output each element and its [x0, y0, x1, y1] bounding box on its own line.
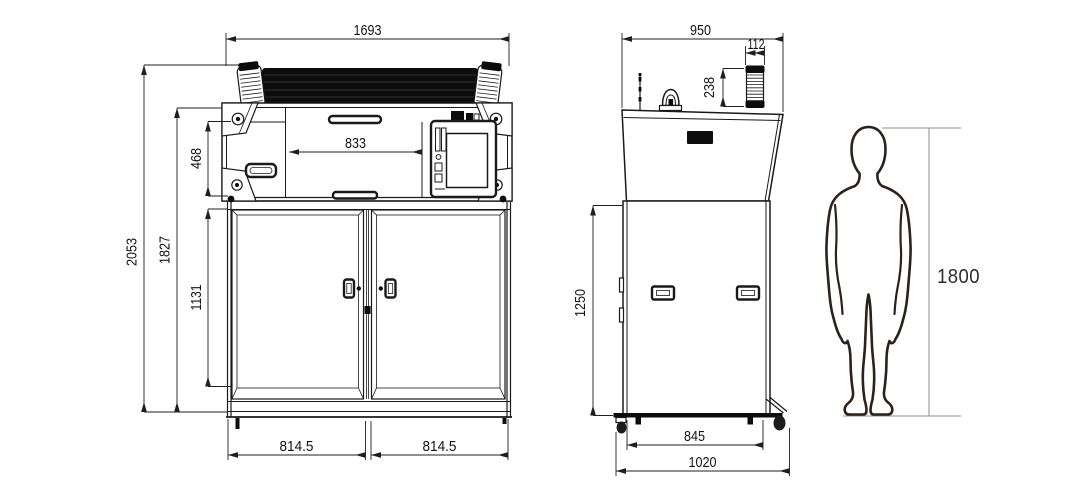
dim-overall-width: 1693 [226, 22, 509, 66]
human-figure: 1800 [826, 127, 980, 416]
dim-label-roller-length: 238 [701, 77, 718, 98]
dim-label-right-door-width: 814.5 [423, 438, 457, 455]
console-handle-slot [246, 164, 276, 177]
control-panel [431, 111, 496, 197]
dim-label-top-depth: 950 [690, 22, 711, 39]
door-gap [367, 210, 369, 399]
leveling-foot-left [636, 418, 642, 425]
leveling-foot-right [748, 418, 754, 425]
hinge-left-lower [620, 308, 624, 322]
side-body [620, 201, 771, 415]
right-door-handle [386, 280, 396, 298]
dim-label-opening-width: 833 [345, 135, 366, 152]
dim-roller-diameter: 112 [746, 36, 765, 65]
dim-label-left-door-width: 814.5 [280, 438, 314, 455]
dim-label-base-depth: 845 [684, 428, 705, 445]
right-door [372, 210, 506, 399]
side-vent [687, 131, 713, 144]
side-handle-right [737, 287, 759, 300]
roller-end-cap-left [236, 61, 265, 109]
top-vent-slot [329, 116, 381, 123]
antenna [638, 73, 641, 110]
dim-left-door-width: 814.5 [228, 419, 366, 460]
side-handle-left [652, 287, 674, 300]
dim-label-console-height: 468 [188, 148, 205, 169]
dim-label-door-height: 1131 [188, 285, 205, 311]
roller-end-cap-right [474, 61, 503, 109]
dim-roller-length: 238 [701, 69, 744, 107]
dim-label-overall-depth: 1020 [689, 454, 717, 471]
console-band [222, 103, 512, 202]
hinge-bolt-right [500, 196, 507, 203]
human-silhouette [826, 127, 910, 415]
right-lock-dot [379, 286, 383, 290]
door-latch [365, 306, 371, 314]
dim-label-cabinet-height: 1250 [572, 289, 589, 317]
dim-label-overall-height: 2053 [124, 238, 141, 266]
dim-label-body-height: 1827 [157, 236, 174, 264]
front-view: 1693 833 468 1131 1827 [124, 22, 513, 460]
hinge-left-upper [620, 278, 624, 292]
front-foot-right [503, 418, 507, 424]
dimension-drawing: 1693 833 468 1131 1827 [0, 0, 1069, 500]
dim-right-door-width: 814.5 [371, 419, 508, 460]
bottom-vent-slot [333, 192, 377, 199]
dim-cabinet-height: 1250 [572, 206, 622, 416]
dim-base-depth: 845 [627, 420, 763, 450]
top-roller-bar [236, 61, 503, 109]
drawing-canvas: 1693 833 468 1131 1827 [0, 0, 1069, 500]
side-roller [746, 66, 765, 109]
left-door-handle [344, 280, 354, 298]
beacon-light [660, 90, 682, 111]
touchscreen [447, 134, 488, 188]
cabinet [226, 202, 512, 429]
dim-door-height: 1131 [188, 209, 232, 387]
left-lock-dot [357, 286, 361, 290]
hinge-bolt-left [228, 196, 235, 203]
caster-wheel-left [617, 422, 627, 434]
left-door [232, 210, 364, 399]
front-foot-left [236, 418, 240, 429]
caster-wheel-right [774, 416, 786, 431]
dim-label-overall-width: 1693 [354, 22, 382, 39]
side-view: 950 112 238 1250 845 [572, 22, 790, 476]
human-height-label: 1800 [937, 265, 980, 288]
dim-label-roller-diameter: 112 [748, 36, 765, 53]
side-console [622, 110, 783, 201]
